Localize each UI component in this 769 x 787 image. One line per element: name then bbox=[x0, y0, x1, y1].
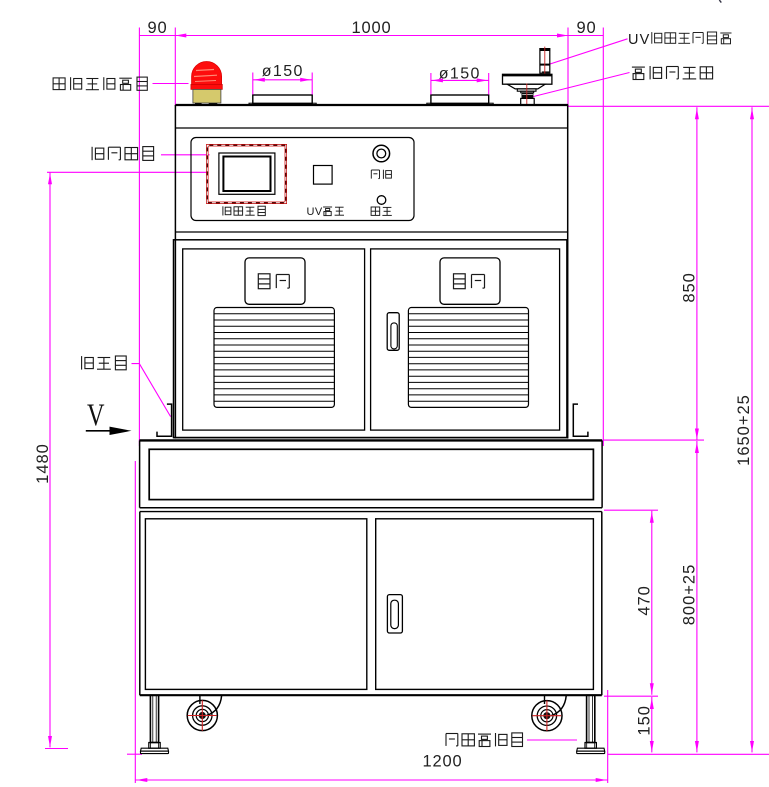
svg-text:90: 90 bbox=[577, 19, 597, 37]
svg-text:800+25: 800+25 bbox=[681, 564, 699, 626]
svg-text:ø150: ø150 bbox=[262, 63, 304, 80]
svg-text:850: 850 bbox=[681, 272, 699, 303]
svg-text:150: 150 bbox=[636, 705, 654, 736]
svg-text:1000: 1000 bbox=[352, 19, 392, 37]
svg-text:UV: UV bbox=[307, 206, 323, 218]
svg-text:1480: 1480 bbox=[34, 443, 52, 484]
svg-text:UV: UV bbox=[628, 32, 651, 48]
svg-text:1200: 1200 bbox=[423, 753, 463, 771]
svg-text:1650+25: 1650+25 bbox=[735, 394, 753, 466]
svg-text:470: 470 bbox=[636, 585, 654, 616]
svg-text:90: 90 bbox=[148, 19, 168, 37]
svg-text:V: V bbox=[87, 397, 105, 433]
svg-text:ø150: ø150 bbox=[439, 66, 481, 83]
